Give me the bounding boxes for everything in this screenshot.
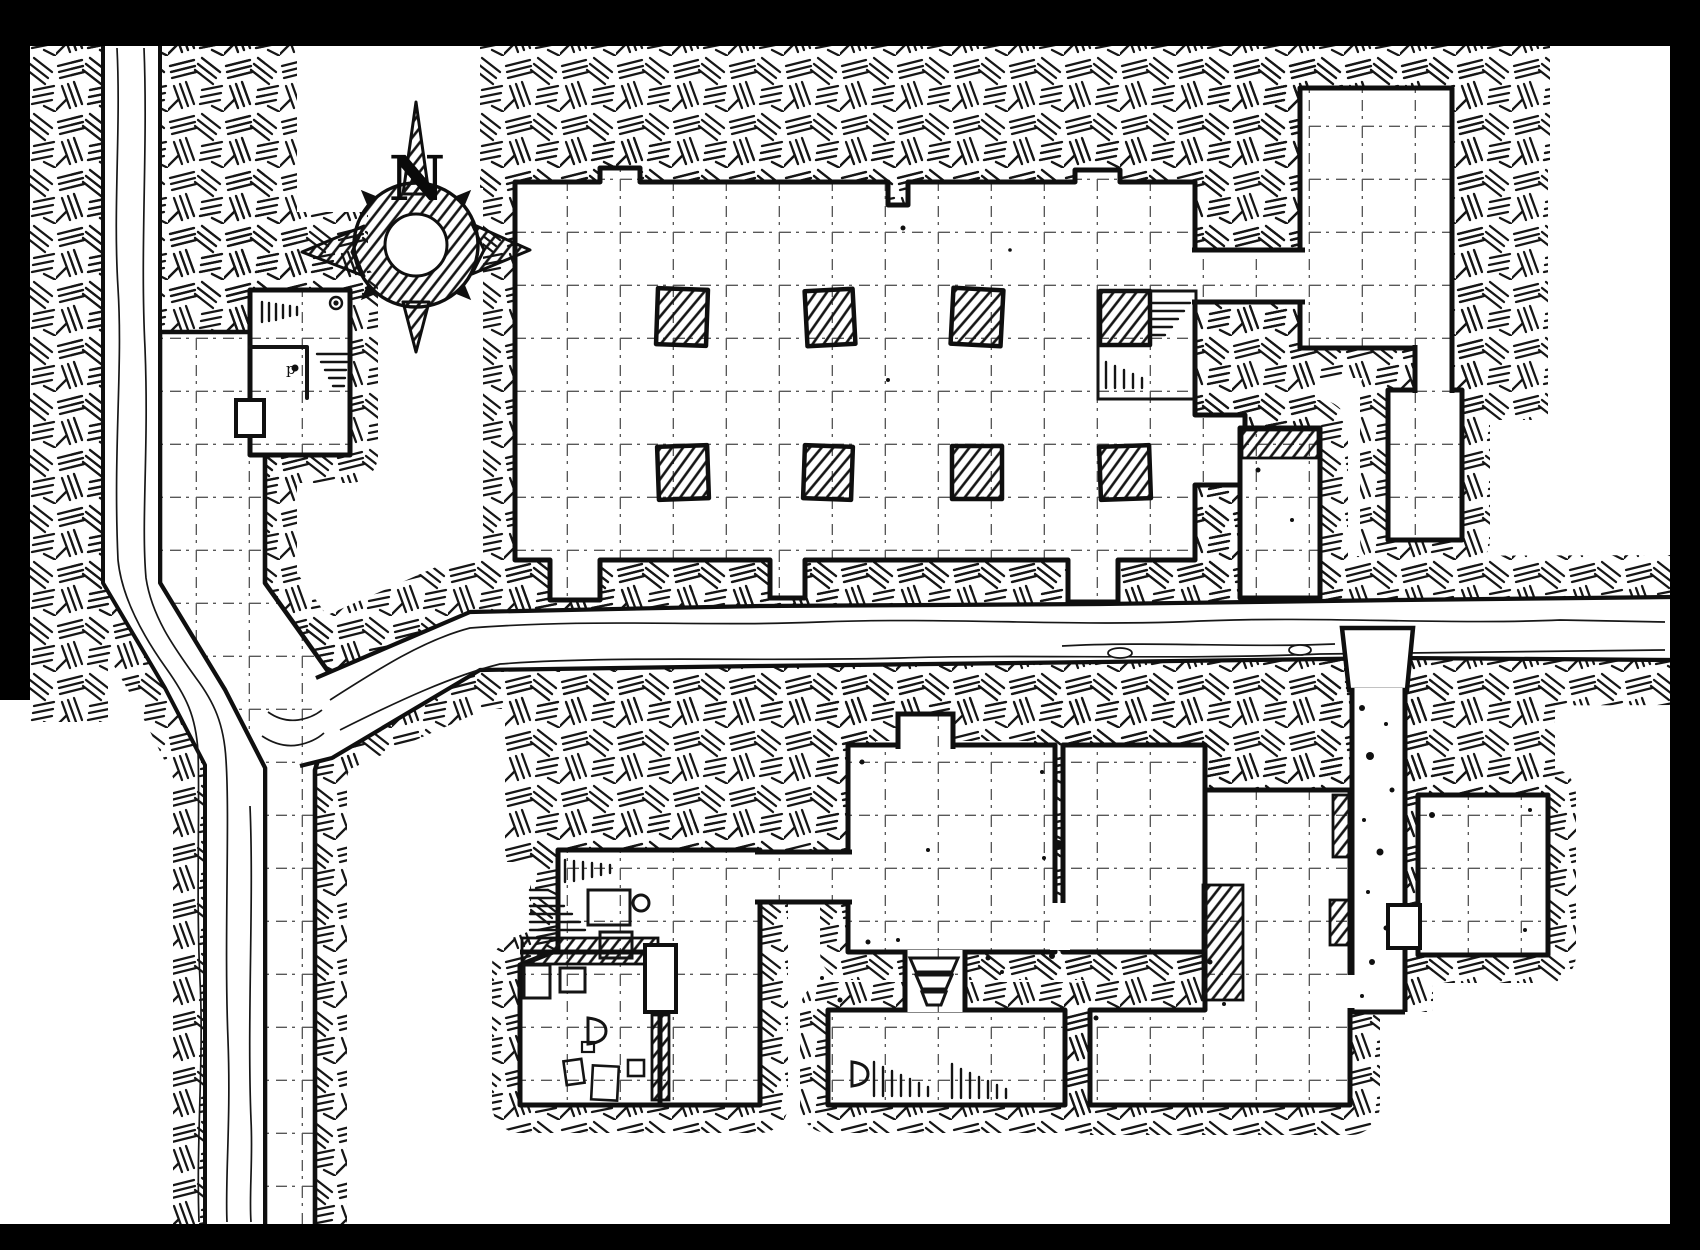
rubble-band-east-stair-room: [1242, 430, 1318, 458]
dungeon-map: p N: [0, 0, 1700, 1250]
east-narrow-room: [1388, 390, 1462, 540]
rubble-chunk: [1333, 795, 1351, 857]
pillar: [805, 289, 856, 346]
northeast-room: [1300, 88, 1452, 348]
frame-right: [1670, 0, 1700, 1250]
rubble-corridor-cap: [1342, 628, 1413, 690]
pillar: [1099, 445, 1151, 500]
building-well-dot: [335, 302, 338, 305]
frame-left: [0, 0, 30, 700]
opening-corridor-to-annex: [1344, 975, 1356, 1008]
pillar: [952, 446, 1002, 499]
rubble-chunk: [1330, 900, 1349, 945]
corridor-a-to-b: [1415, 345, 1452, 393]
great-pillared-hall: [515, 168, 1300, 602]
rubble-stub-annex: [1203, 885, 1243, 1000]
shelf-room-south: [828, 1010, 1065, 1105]
pillar: [1100, 291, 1150, 345]
lower-hall-west: [848, 745, 1055, 952]
southeast-room: [1418, 795, 1548, 955]
dungeon-map-page: p N: [0, 0, 1700, 1250]
door-storeroom: [645, 945, 676, 1012]
pillar: [657, 445, 709, 500]
pillar: [656, 288, 708, 346]
hall-e1-north-notch: [898, 714, 953, 749]
compass-ring-inner: [385, 214, 447, 276]
lower-hall-east: [1063, 745, 1205, 952]
frame-top: [0, 0, 1700, 46]
corridor-hall-to-ne-room: [1192, 250, 1305, 302]
opening-e1-e2: [1050, 903, 1070, 950]
frame-bottom: [0, 1224, 1700, 1250]
pillar: [951, 288, 1004, 347]
compass-north-label: N: [389, 142, 446, 215]
door-corridor-to-se-room: [1388, 905, 1420, 948]
storeroom-west: [520, 850, 760, 1105]
door-building-to-road: [236, 400, 264, 436]
building-letter-mark: p: [286, 360, 296, 378]
compass-south-spike: [403, 302, 429, 352]
pillar: [803, 445, 853, 500]
corridor-d-to-e1: [755, 852, 852, 902]
